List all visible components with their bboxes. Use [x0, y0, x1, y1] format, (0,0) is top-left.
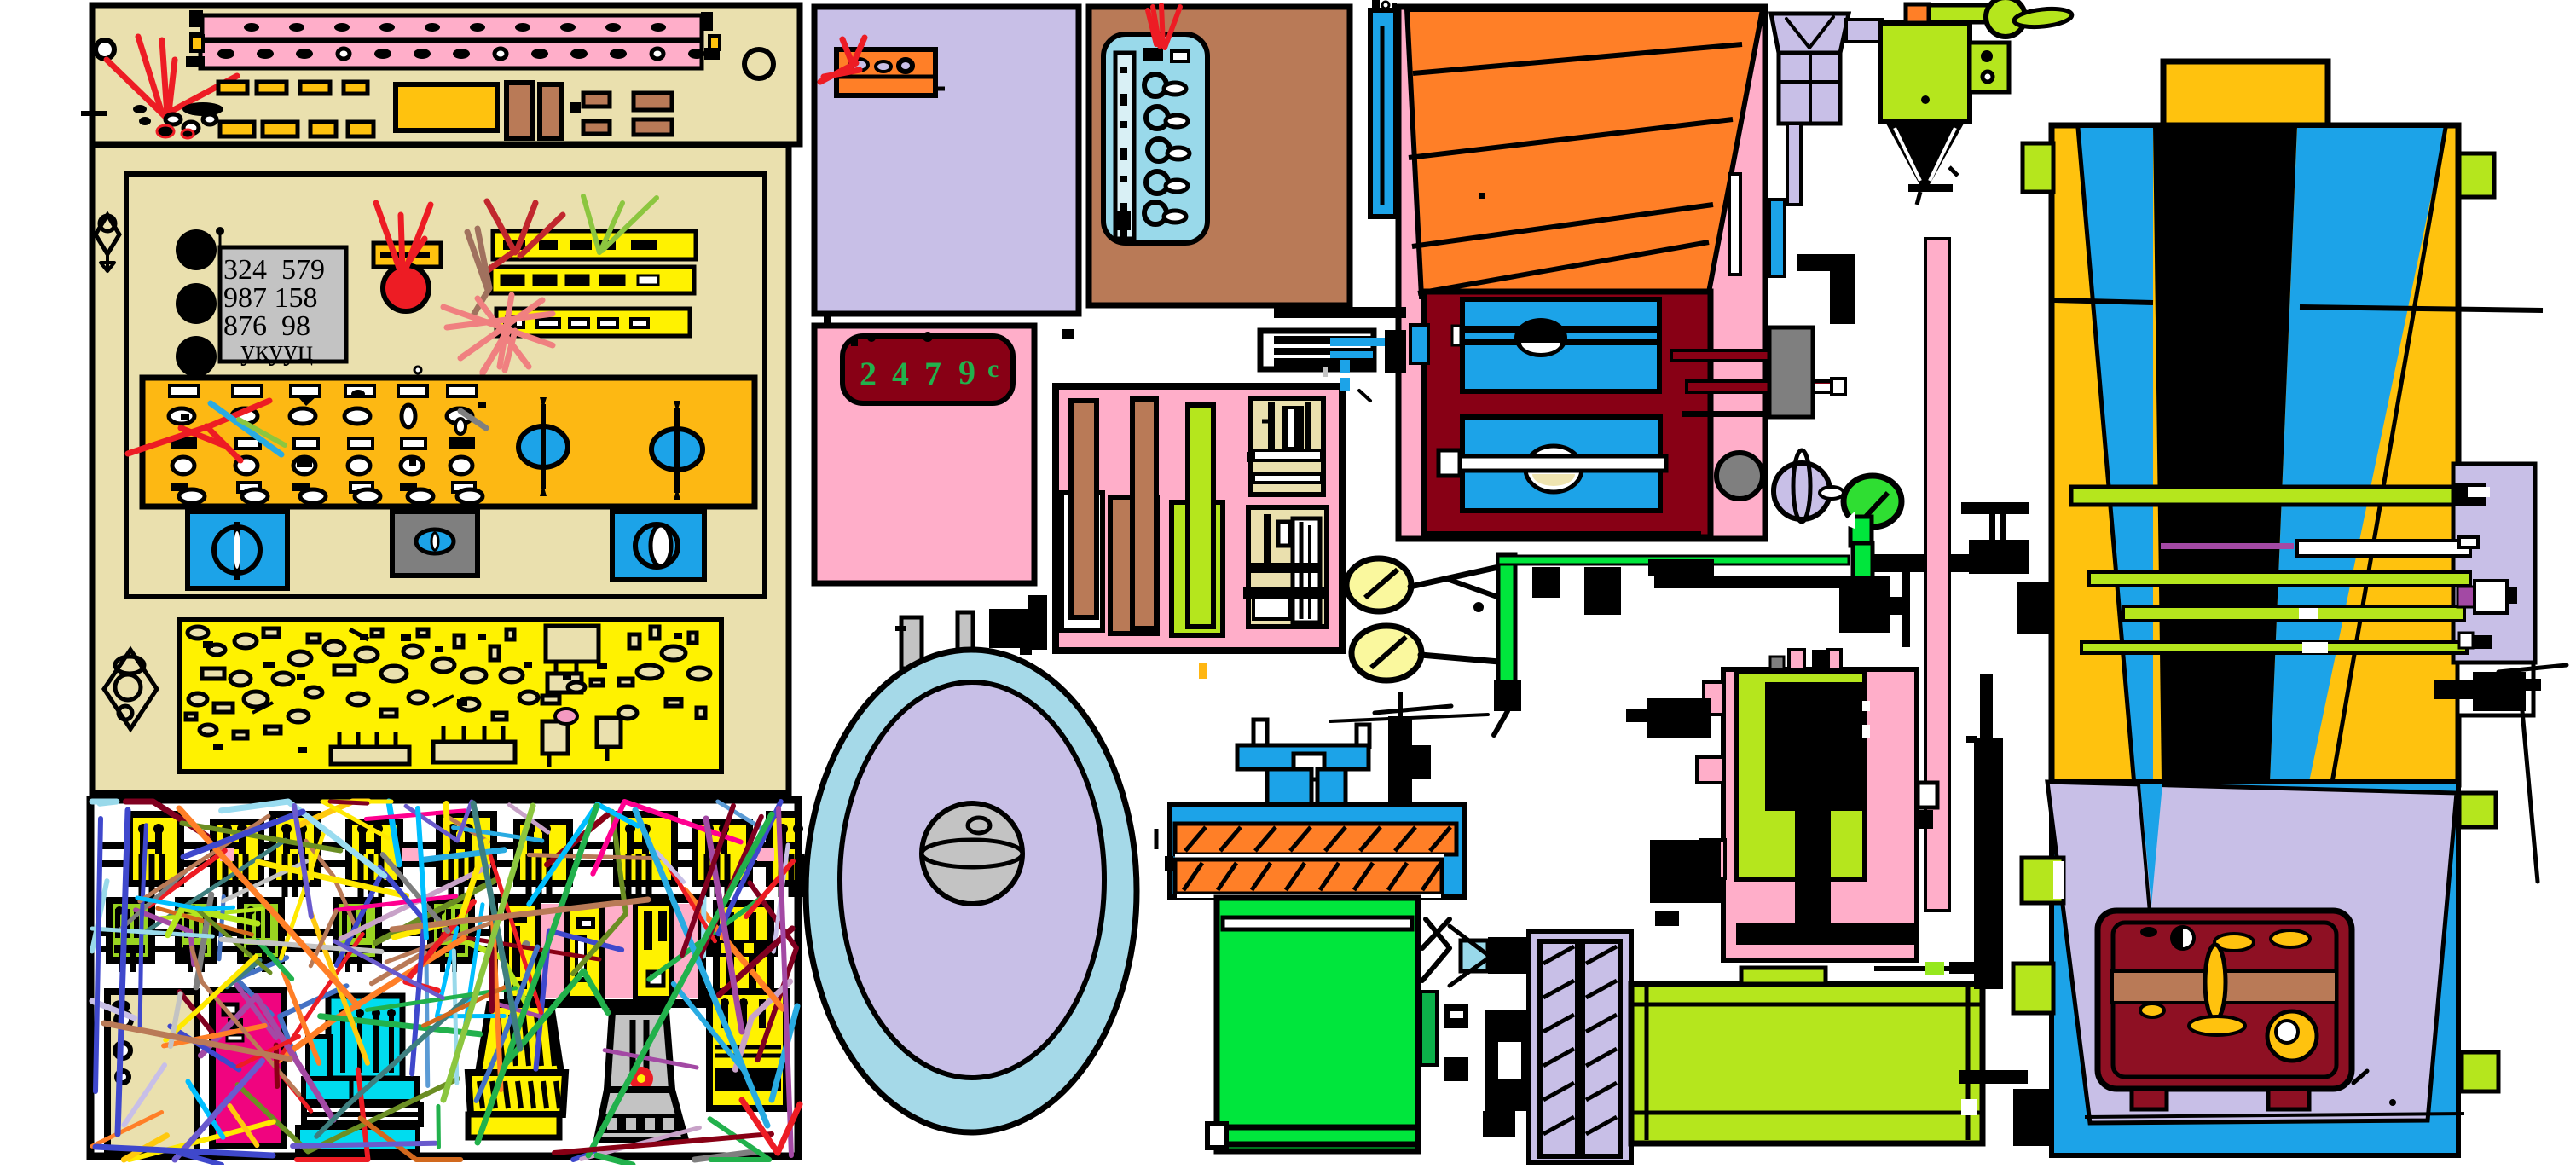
svg-text:987 158: 987 158 [223, 282, 318, 314]
svg-text:c: c [987, 355, 999, 383]
svg-text:324 579: 324 579 [223, 254, 325, 286]
svg-text:2 4 7: 2 4 7 [860, 355, 945, 393]
svg-text:укууц: укууц [240, 335, 313, 367]
svg-text:9: 9 [958, 353, 975, 391]
